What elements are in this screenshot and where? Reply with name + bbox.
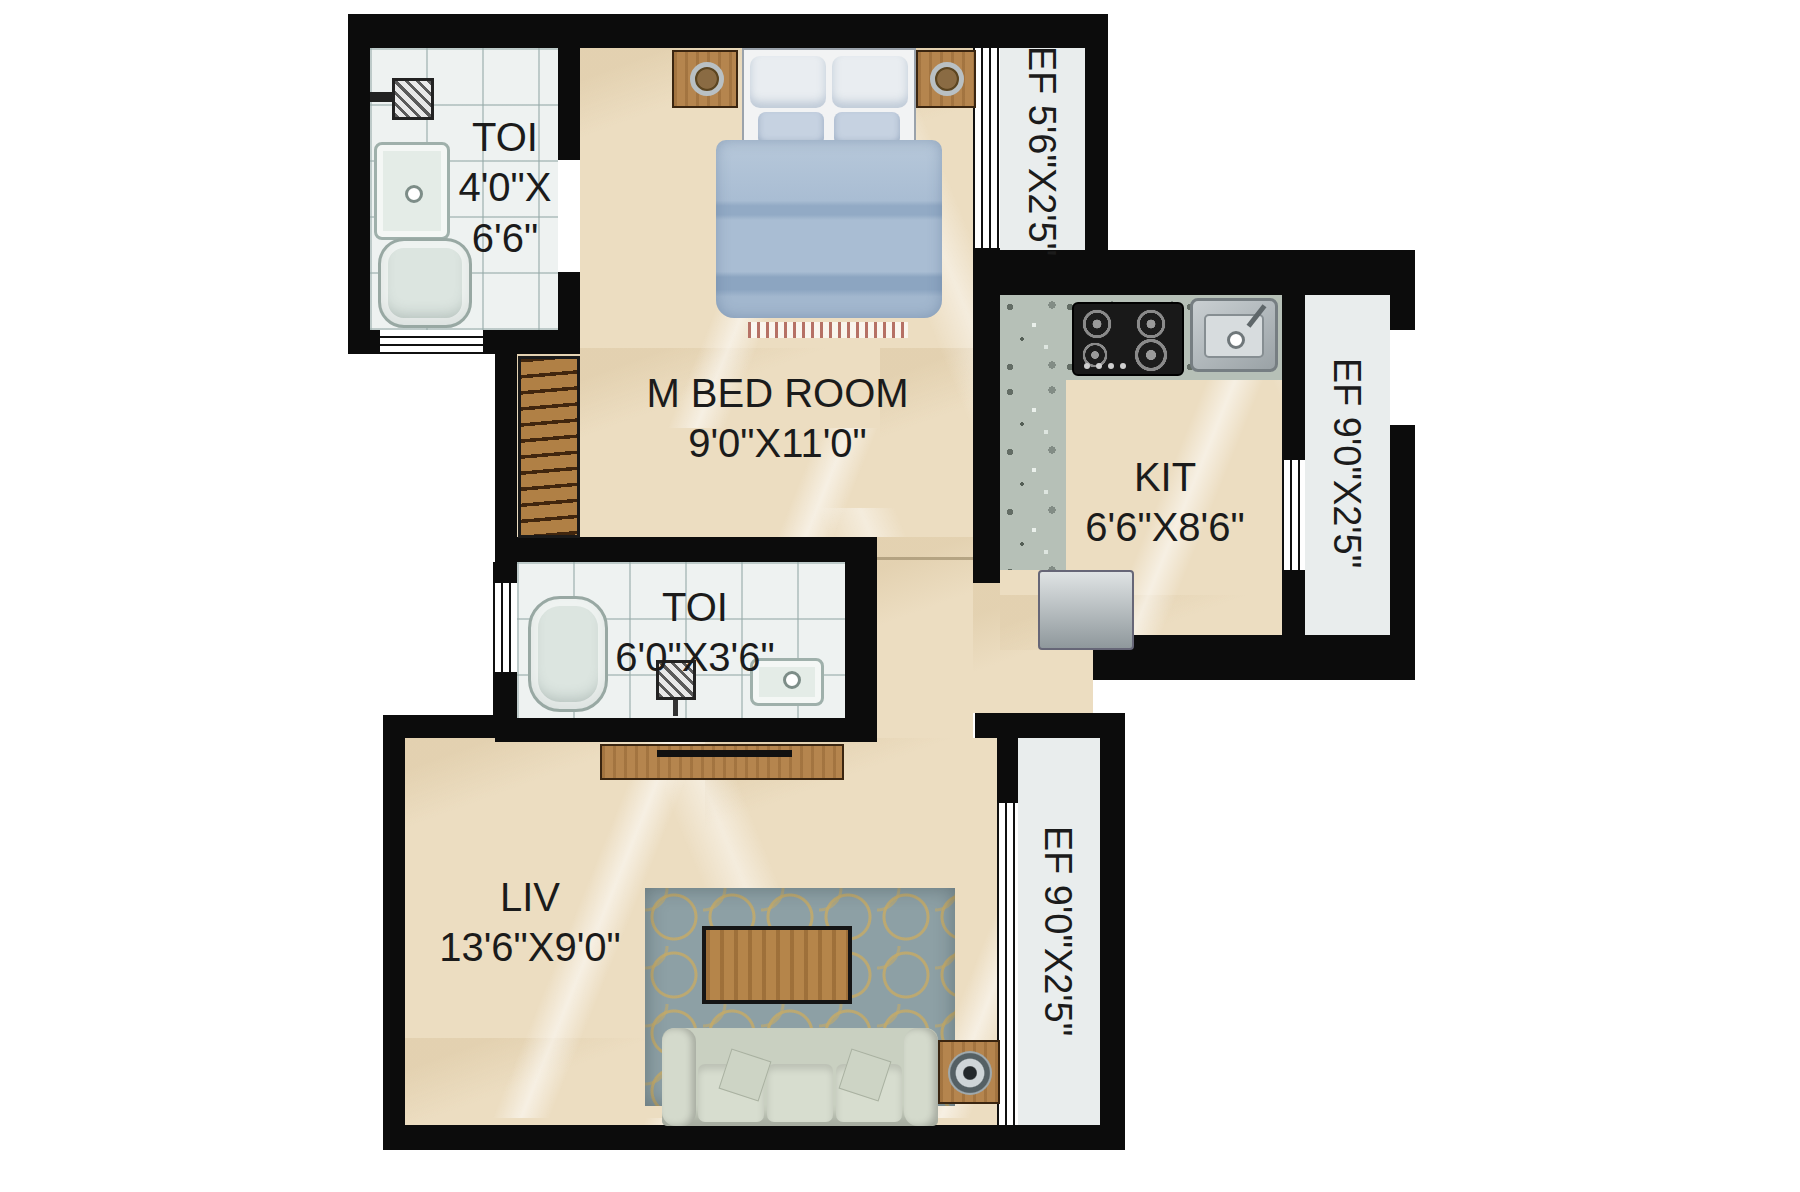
room-name: LIV [500, 872, 560, 922]
kitchen-sink-icon [1190, 298, 1278, 372]
room-dims: 6'6" [472, 213, 538, 263]
tv-screen [657, 750, 792, 757]
wall-segment [383, 1125, 1125, 1150]
wall-segment [493, 562, 517, 583]
room-label-kitchen: KIT 6'6"X8'6" [1040, 452, 1290, 553]
bedroom-passage-threshold [877, 557, 973, 560]
tv-cabinet-icon [600, 744, 844, 780]
ef-label-kitchen-right: EF 9'0"X2'5" [1324, 303, 1370, 623]
speaker-table [938, 1040, 1000, 1104]
nightstand-right [916, 50, 976, 108]
room-name: M BED ROOM [646, 368, 908, 418]
toilet-middle-window [493, 583, 517, 672]
nightstand-left [672, 50, 738, 108]
bed-blanket [716, 140, 942, 318]
room-label-living: LIV 13'6"X9'0" [385, 872, 675, 973]
room-label-toilet-middle: TOI 6'0"X3'6" [555, 582, 835, 683]
wall-segment [495, 330, 517, 562]
room-name: TOI [472, 112, 538, 162]
wall-segment [1093, 635, 1415, 680]
wall-segment [1282, 570, 1305, 635]
wall-segment [493, 672, 517, 718]
toilet-top-vent [378, 332, 483, 354]
wall-segment [973, 248, 1000, 583]
nightstand-knob [690, 62, 724, 96]
room-dims: 6'0"X3'6" [615, 632, 774, 682]
shower-pipe [370, 92, 394, 102]
wall-segment [495, 537, 877, 562]
double-bed-icon [742, 48, 916, 318]
room-dims: 6'6"X8'6" [1085, 502, 1244, 552]
room-dims: 9'0"X11'0" [688, 418, 867, 468]
wall-segment [348, 330, 380, 354]
wall-segment [348, 14, 370, 354]
room-dims: 4'0"X [458, 162, 551, 212]
floor-plan: TOI 4'0"X 6'6" M BED ROOM 9'0"X11'0" EF … [0, 0, 1800, 1192]
wall-segment [495, 718, 877, 742]
wall-segment [1282, 295, 1305, 460]
wardrobe-icon [518, 356, 580, 538]
room-name: KIT [1134, 452, 1196, 502]
wall-segment [845, 562, 877, 742]
coffee-table-icon [702, 926, 852, 1004]
room-dims: 13'6"X9'0" [439, 922, 621, 972]
ef-label-top-right: EF 5'6"X2'5" [1019, 0, 1065, 311]
wall-segment [1100, 713, 1125, 1150]
bed-foot-rug [748, 322, 908, 338]
room-name: TOI [662, 582, 728, 632]
ef-label-living-right: EF 9'0"X2'5" [1035, 771, 1081, 1091]
sofa-icon [662, 1028, 938, 1126]
refrigerator-icon [1038, 570, 1134, 650]
wall-segment [1085, 14, 1108, 295]
passage-floor [877, 537, 973, 738]
wall-segment [348, 14, 1108, 48]
room-label-master-bedroom: M BED ROOM 9'0"X11'0" [580, 368, 975, 469]
bedroom-ef-window [973, 48, 1000, 248]
gas-stove-icon [1072, 302, 1184, 376]
wall-segment [558, 272, 580, 354]
wall-segment [997, 738, 1018, 803]
drain-stem [673, 700, 678, 716]
living-ef-window [997, 803, 1018, 1125]
nightstand-knob [930, 62, 964, 96]
wall-segment [1390, 295, 1415, 330]
speaker-icon [948, 1051, 992, 1095]
room-label-toilet-top: TOI 4'0"X 6'6" [415, 112, 595, 263]
